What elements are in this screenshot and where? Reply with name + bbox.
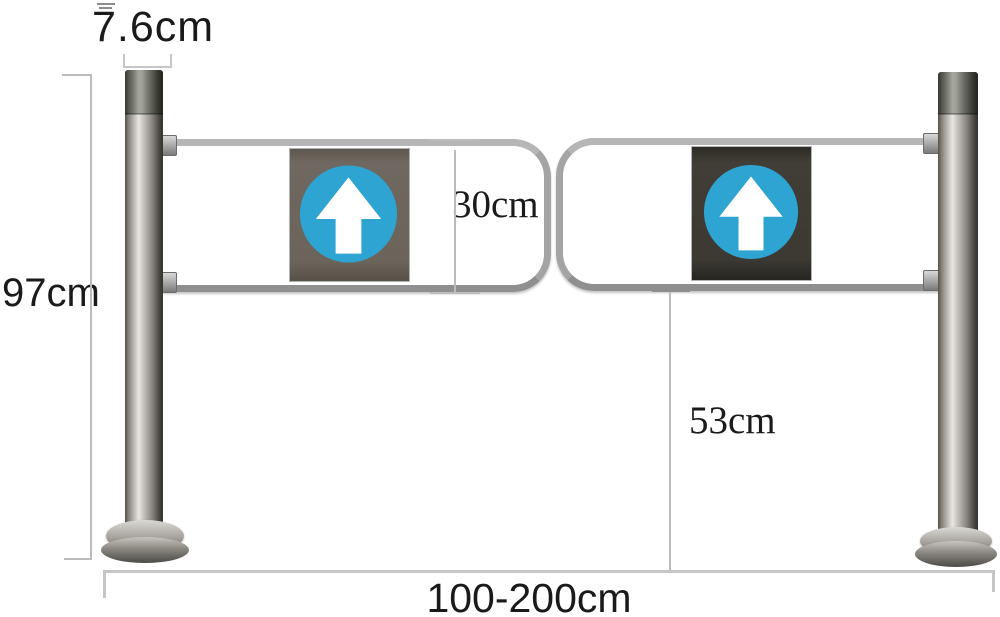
- swing-gate-dimension-diagram: 7.6cm 97cm 30cm 53cm 100-200cm: [0, 0, 1000, 617]
- width-range-label: 100-200cm: [374, 575, 684, 617]
- right-post-cap: [938, 72, 978, 114]
- post-diameter-bracket-tick: [123, 54, 125, 68]
- right-post-base-plate: [915, 541, 997, 567]
- left-post-cap: [125, 70, 163, 114]
- width-range-right-tick: [992, 570, 995, 592]
- left-post-base-plate: [101, 537, 189, 563]
- width-range-left-tick: [103, 570, 106, 598]
- right-gate-arm: [556, 138, 940, 291]
- gate-height-label: 30cm: [452, 182, 539, 227]
- ground-clearance-label: 53cm: [689, 398, 776, 443]
- overall-height-label: 97cm: [2, 271, 100, 316]
- right-post: [938, 72, 978, 540]
- gate-height-bottom-tick: [430, 292, 480, 294]
- left-post: [125, 70, 163, 535]
- gate-height-top-tick: [429, 139, 479, 141]
- gate-height-line: [454, 150, 456, 292]
- ground-clearance-line: [669, 292, 671, 572]
- overall-height-line: [90, 75, 92, 560]
- left-post-seam: [125, 113, 163, 115]
- smudge-artifact: [99, 7, 112, 9]
- post-diameter-label: 7.6cm: [92, 3, 214, 52]
- post-diameter-bracket-tick: [170, 54, 172, 68]
- smudge-artifact: [97, 3, 115, 5]
- width-range-line: [103, 570, 995, 573]
- post-diameter-bracket: [123, 66, 172, 68]
- overall-height-bottom-tick: [64, 558, 92, 560]
- overall-height-top-tick: [62, 74, 92, 76]
- right-post-seam: [938, 113, 978, 115]
- ground-clearance-top-tick: [652, 289, 690, 292]
